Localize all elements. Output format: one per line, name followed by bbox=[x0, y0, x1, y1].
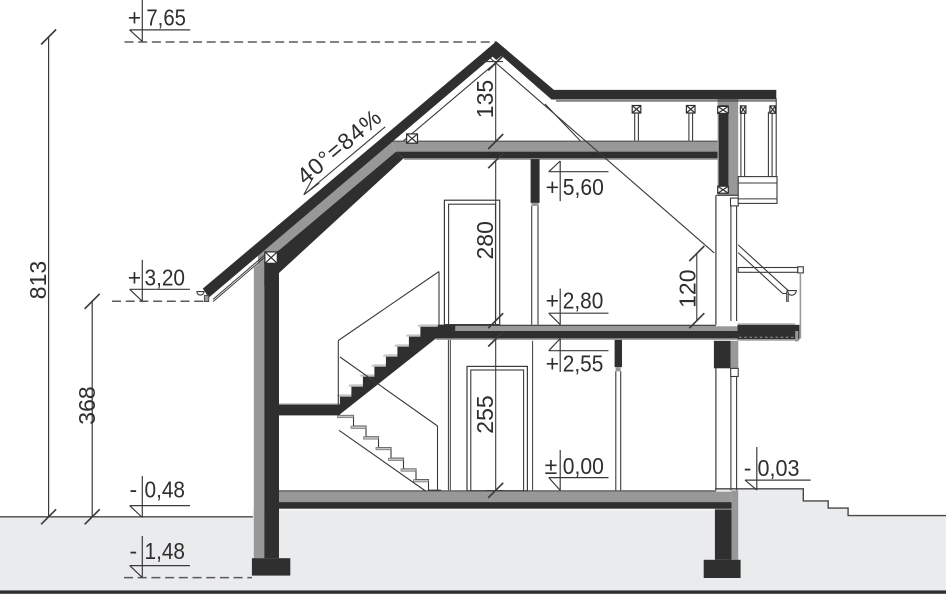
svg-text:368: 368 bbox=[74, 386, 100, 424]
svg-text:-: - bbox=[130, 476, 138, 502]
svg-text:120: 120 bbox=[675, 270, 701, 308]
svg-text:135: 135 bbox=[472, 80, 498, 118]
svg-text:5,60: 5,60 bbox=[563, 174, 604, 200]
svg-text:2,55: 2,55 bbox=[563, 351, 604, 377]
svg-text:3,20: 3,20 bbox=[145, 265, 186, 291]
svg-text:280: 280 bbox=[472, 221, 498, 259]
svg-text:+: + bbox=[546, 351, 559, 377]
svg-text:+: + bbox=[128, 4, 141, 30]
svg-text:+: + bbox=[546, 174, 559, 200]
svg-text:7,65: 7,65 bbox=[146, 4, 186, 30]
svg-text:-: - bbox=[744, 455, 752, 481]
svg-text:255: 255 bbox=[472, 395, 498, 433]
svg-text:±: ± bbox=[545, 453, 558, 479]
svg-text:813: 813 bbox=[25, 261, 51, 299]
svg-text:0,03: 0,03 bbox=[758, 455, 800, 481]
svg-text:0,00: 0,00 bbox=[563, 453, 604, 479]
svg-text:-: - bbox=[130, 538, 138, 564]
svg-text:0,48: 0,48 bbox=[145, 476, 186, 502]
svg-text:+: + bbox=[128, 265, 141, 291]
svg-text:+: + bbox=[546, 288, 559, 314]
svg-text:1,48: 1,48 bbox=[145, 538, 186, 564]
svg-text:2,80: 2,80 bbox=[563, 288, 604, 314]
